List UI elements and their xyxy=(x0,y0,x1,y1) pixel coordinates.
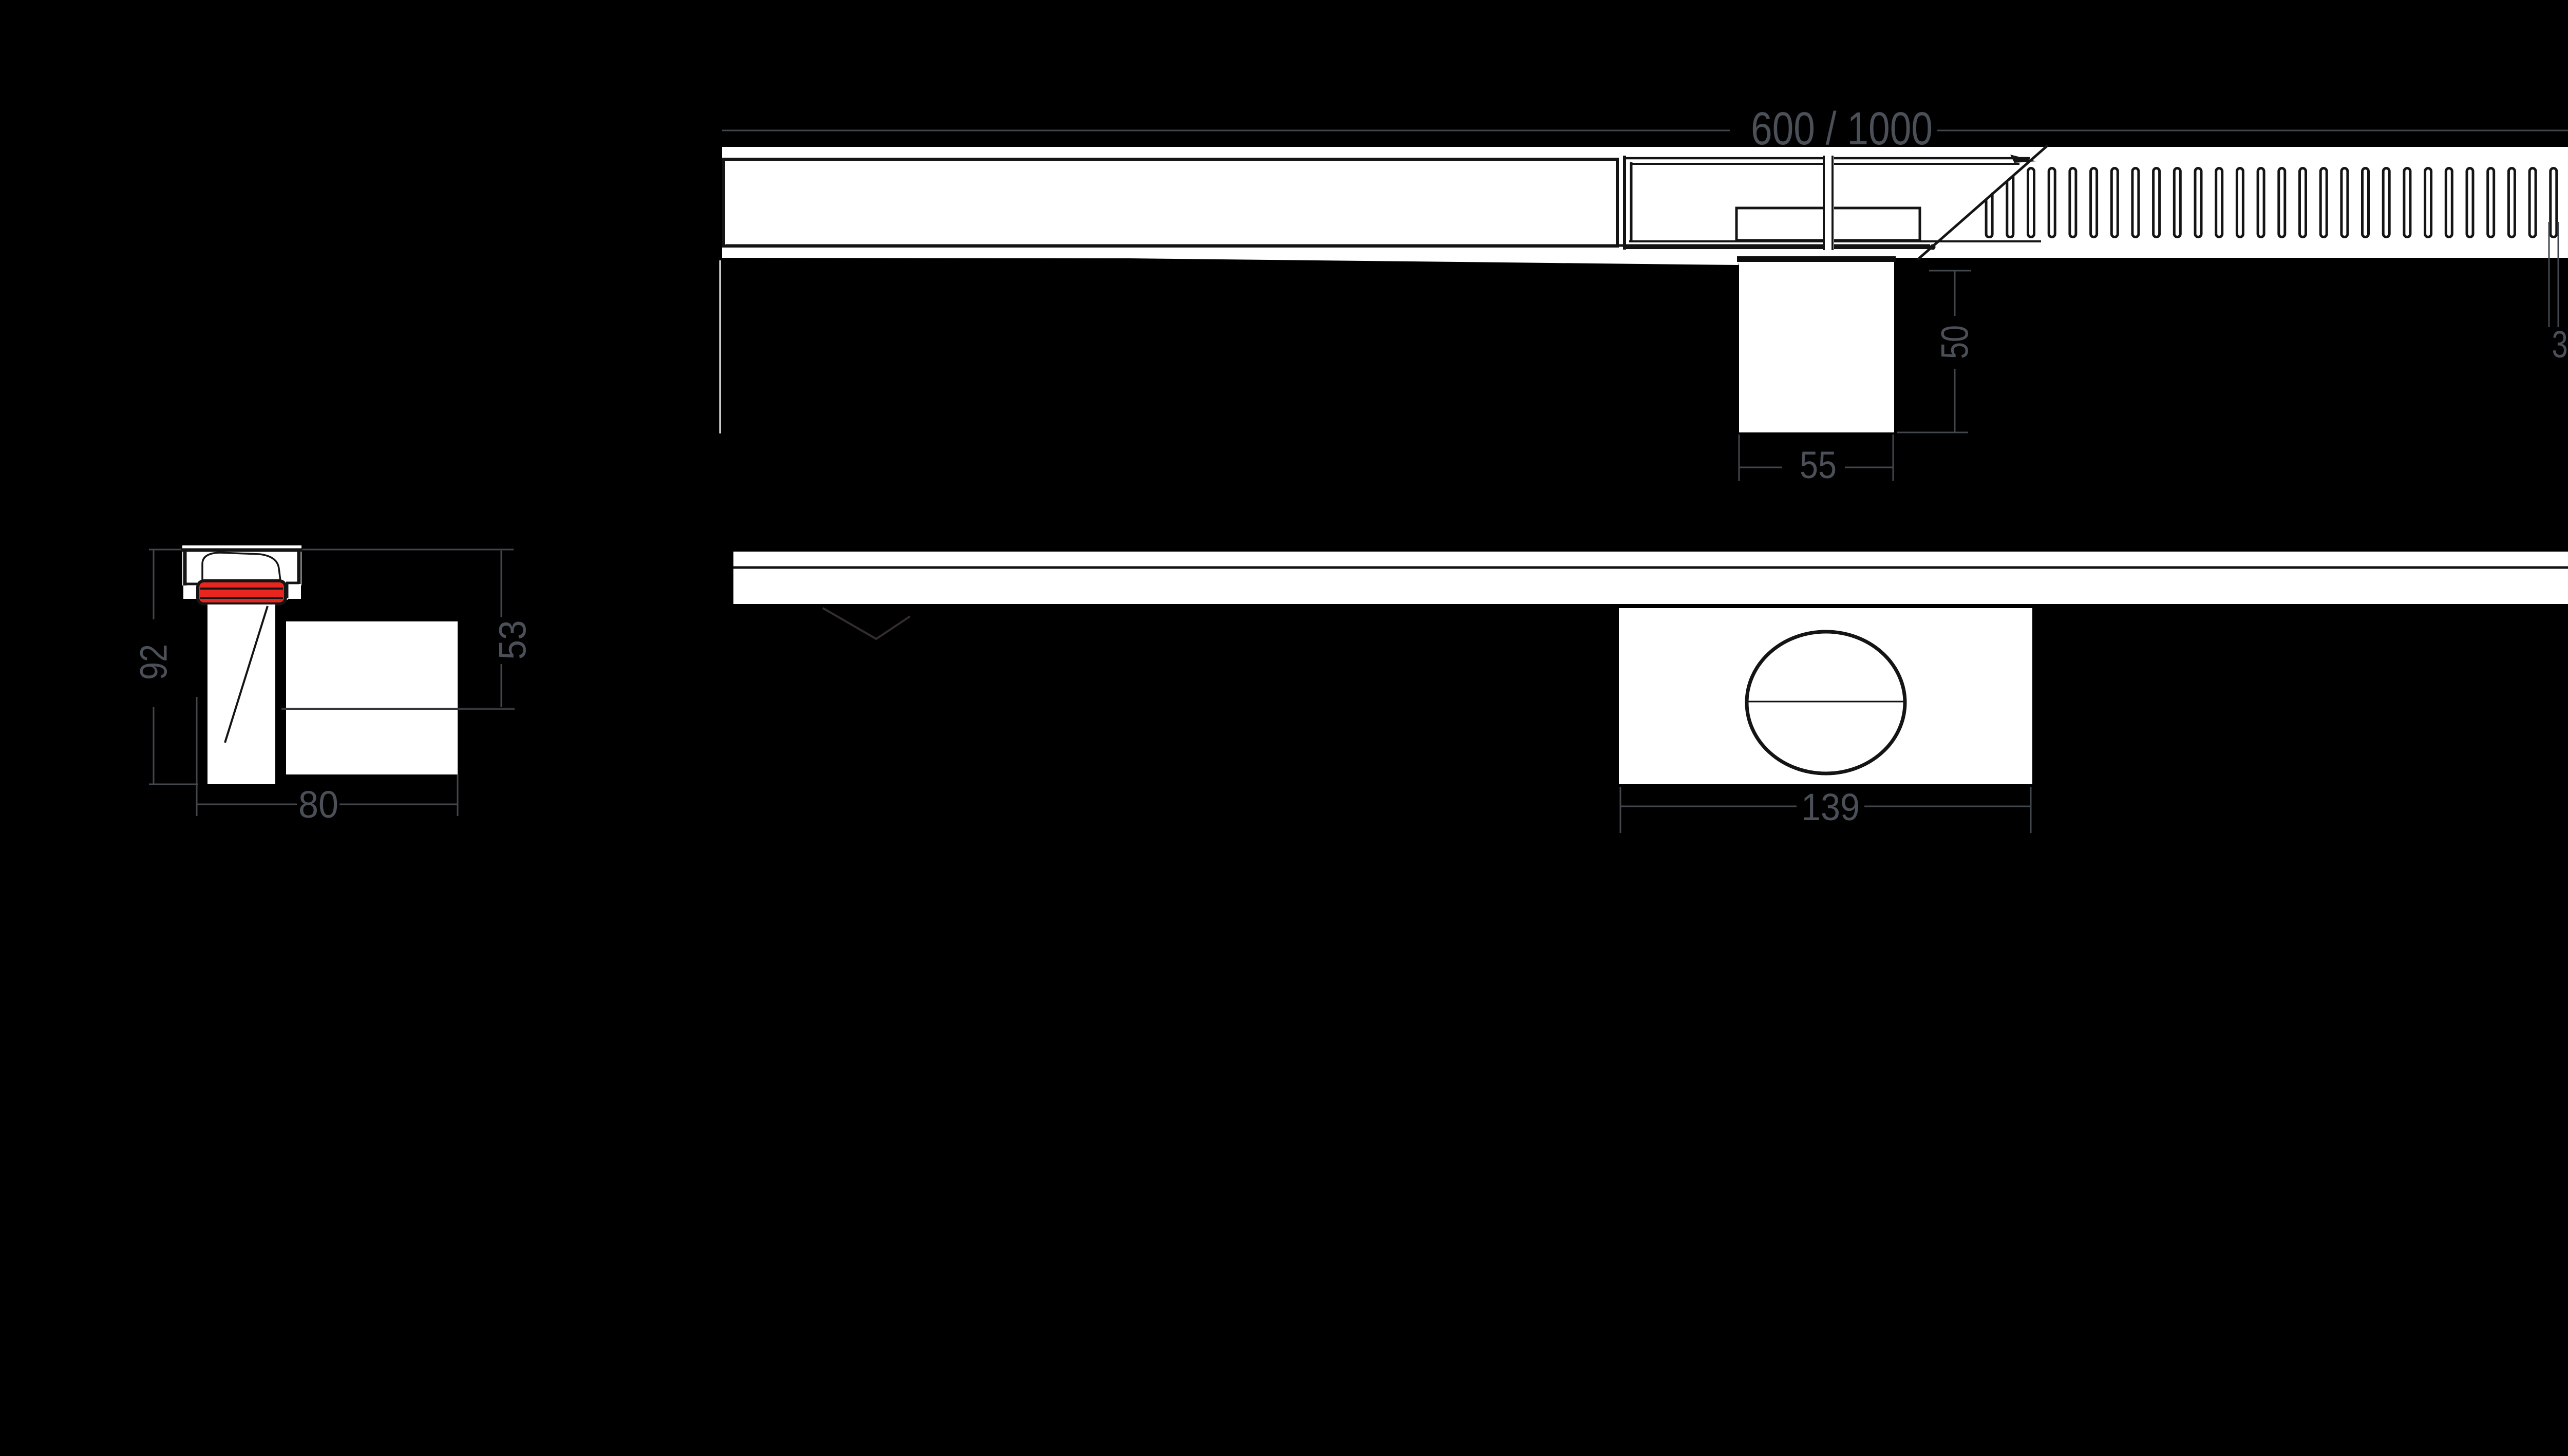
svg-text:80: 80 xyxy=(298,783,338,826)
svg-text:53: 53 xyxy=(492,620,534,660)
svg-text:50: 50 xyxy=(1934,325,1976,359)
svg-text:139: 139 xyxy=(1801,786,1860,828)
svg-text:55: 55 xyxy=(1800,444,1837,486)
svg-text:92: 92 xyxy=(133,644,175,680)
svg-text:3: 3 xyxy=(2552,323,2568,366)
